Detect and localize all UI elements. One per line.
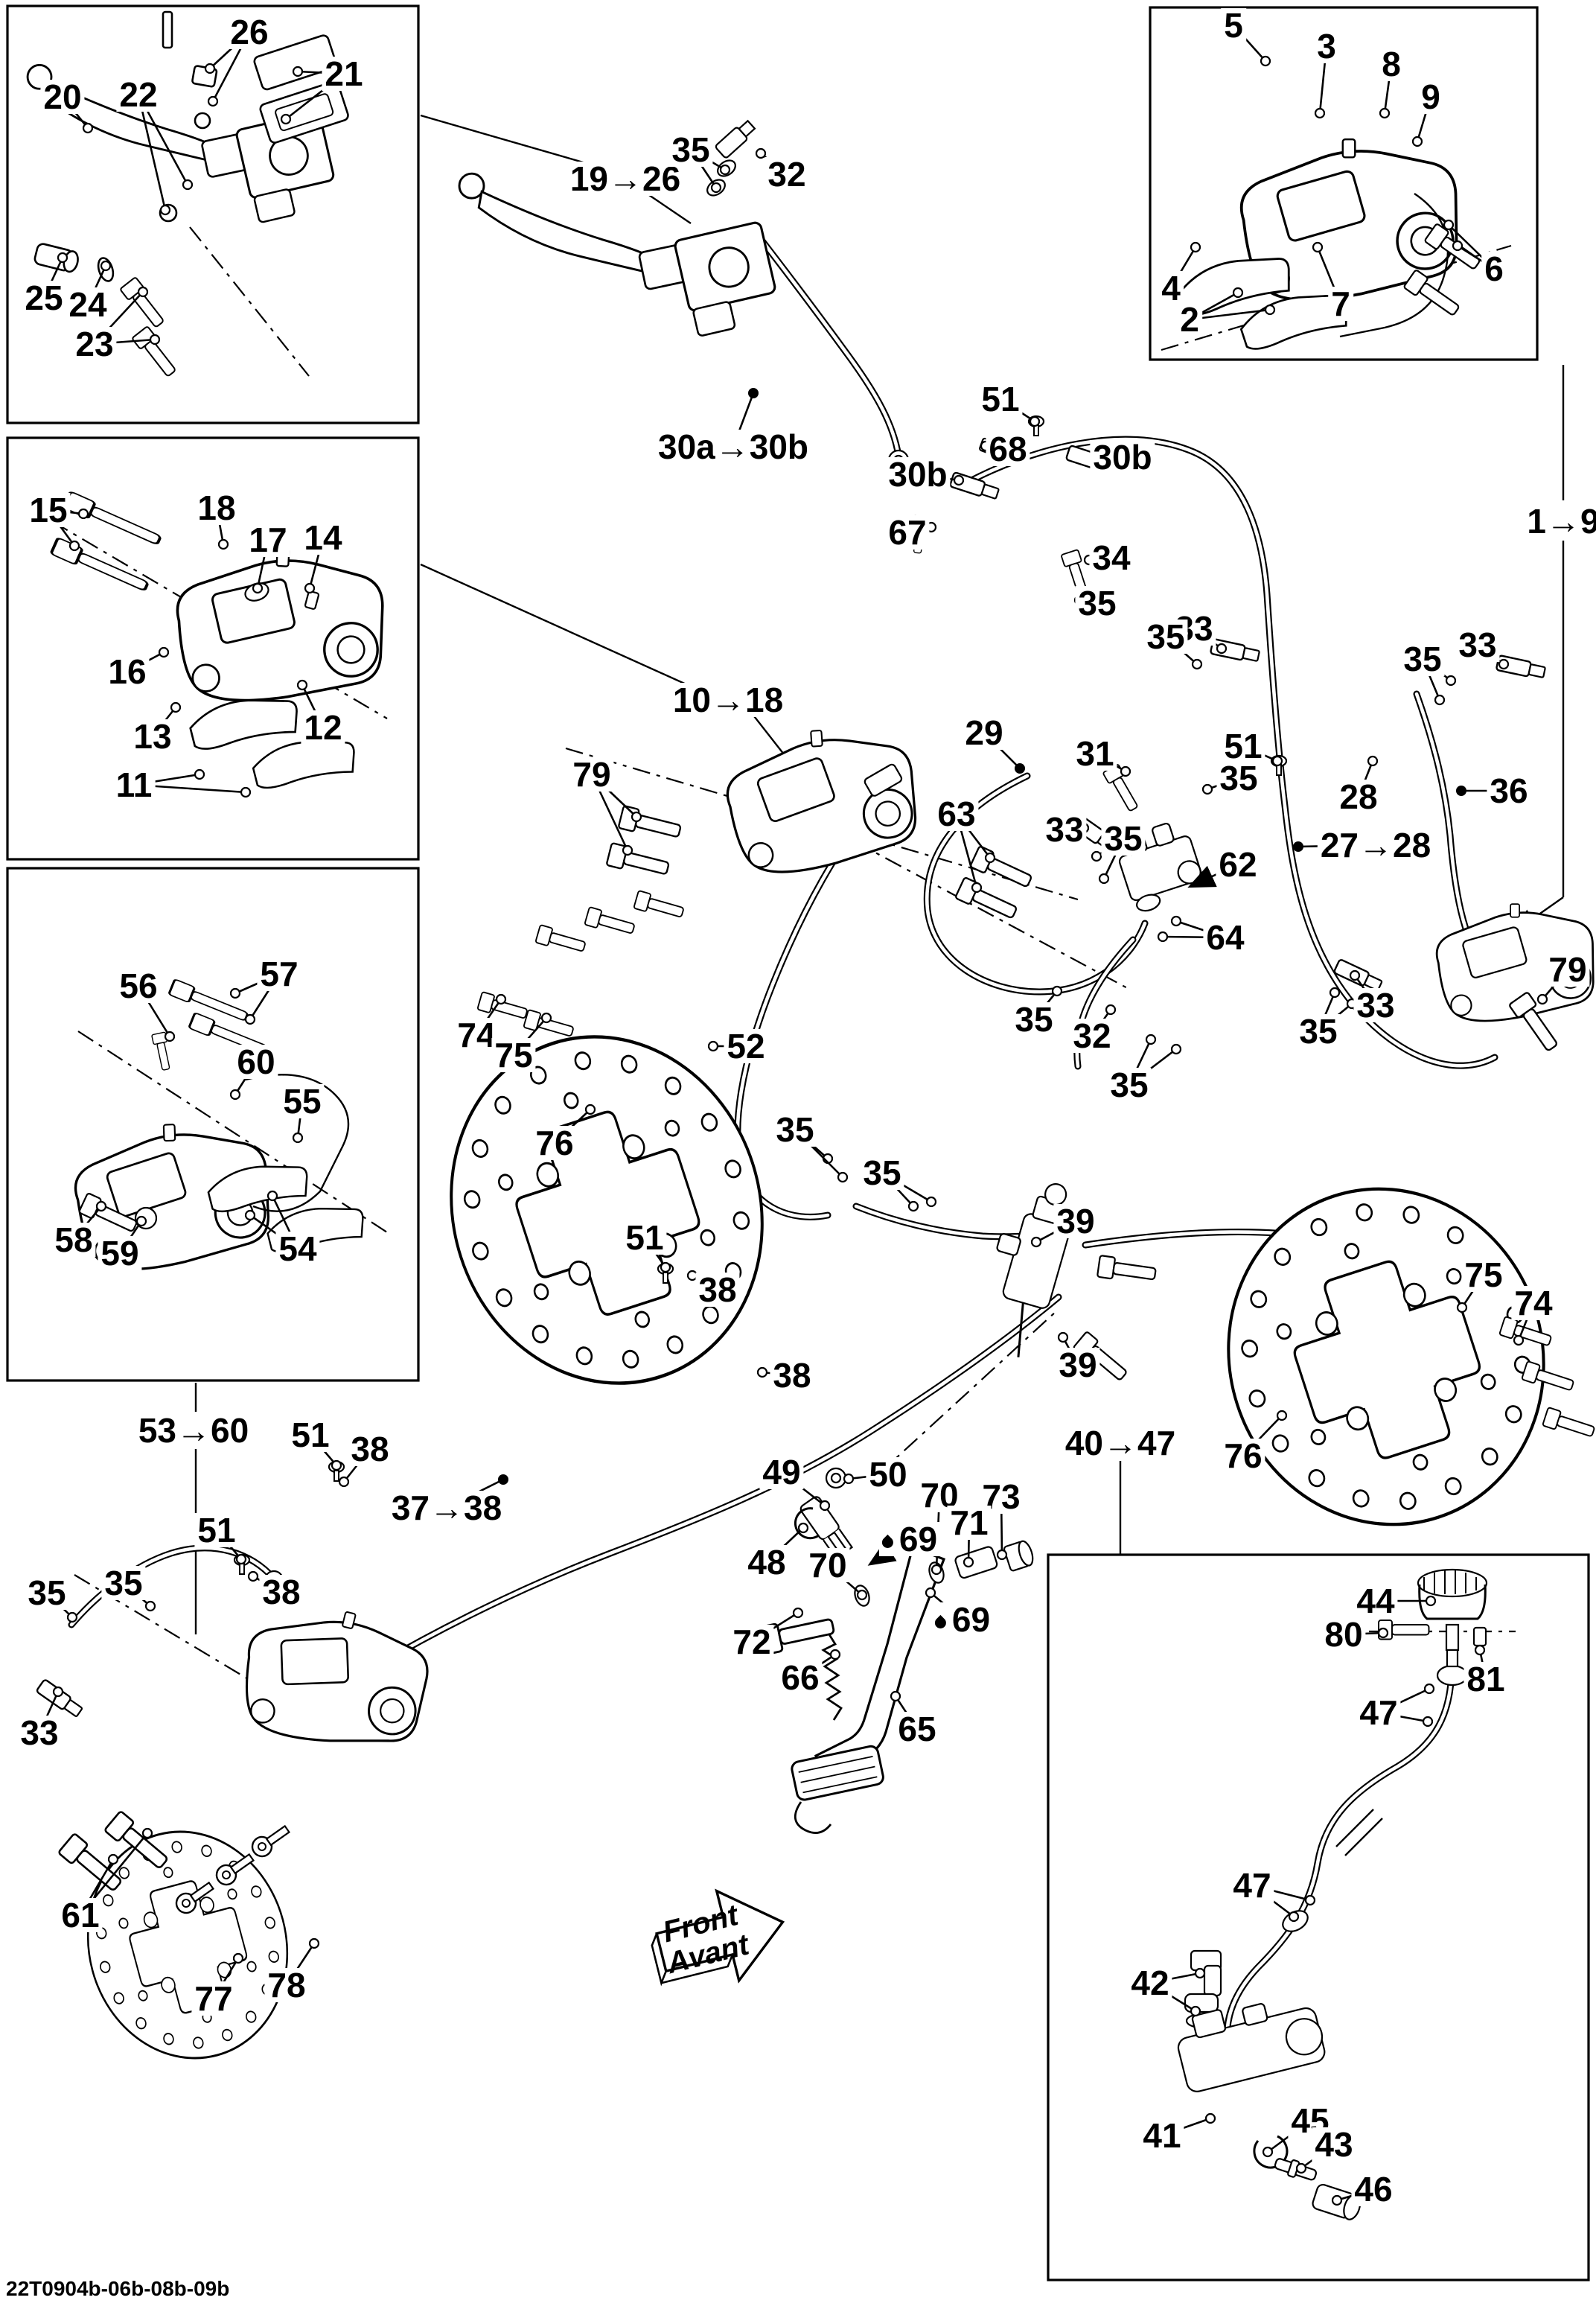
brake-pads — [187, 246, 1352, 1255]
callout-21: 21 — [322, 57, 366, 91]
callout-20: 20 — [40, 80, 84, 114]
callout-35: 35 — [1075, 586, 1119, 620]
callout-23: 23 — [72, 327, 116, 361]
callout-48: 48 — [744, 1545, 788, 1579]
callout-70: 70 — [805, 1548, 849, 1582]
callout-49: 49 — [759, 1455, 803, 1489]
callout-80: 80 — [1321, 1617, 1365, 1652]
callout-69: 69 — [879, 1522, 940, 1556]
callout-75: 75 — [1461, 1258, 1505, 1292]
callout-59: 59 — [98, 1236, 141, 1270]
callout-32: 32 — [765, 157, 808, 191]
box-caliper-54-60 — [7, 868, 418, 1380]
callout-2: 2 — [1177, 302, 1202, 337]
callout-15: 15 — [26, 493, 70, 527]
callout-1→9: 1→9 — [1524, 504, 1596, 538]
callout-25: 25 — [22, 281, 66, 315]
callout-39: 39 — [1056, 1348, 1099, 1382]
caliper-box2 — [173, 540, 390, 706]
callout-9: 9 — [1418, 80, 1443, 114]
pin-15b — [51, 538, 150, 595]
callout-57: 57 — [257, 957, 301, 991]
callout-40→47: 40→47 — [1062, 1426, 1178, 1460]
callout-55: 55 — [280, 1084, 324, 1118]
callout-60: 60 — [234, 1045, 278, 1079]
oil-drop-icon — [933, 1615, 948, 1631]
callout-32: 32 — [1070, 1019, 1114, 1053]
callout-79: 79 — [569, 757, 613, 792]
callout-58: 58 — [51, 1223, 95, 1257]
callout-35: 35 — [1012, 1002, 1056, 1036]
callout-35: 35 — [773, 1112, 817, 1147]
callout-50: 50 — [866, 1457, 910, 1491]
callout-22: 22 — [116, 77, 160, 112]
callout-7: 7 — [1328, 287, 1353, 321]
callout-64: 64 — [1203, 920, 1247, 955]
pin-15a — [63, 491, 162, 549]
callout-35: 35 — [1101, 821, 1145, 856]
callout-52: 52 — [724, 1029, 767, 1063]
callout-79: 79 — [1545, 952, 1589, 987]
callout-31: 31 — [1073, 736, 1117, 771]
brake-lever-19-26 — [459, 173, 782, 337]
brake-disc-76-right — [1185, 1147, 1587, 1565]
callout-36: 36 — [1487, 774, 1530, 808]
callout-13: 13 — [130, 719, 174, 754]
callout-75: 75 — [491, 1038, 535, 1072]
callout-35: 35 — [1216, 761, 1260, 795]
callout-35: 35 — [101, 1566, 145, 1600]
callout-51: 51 — [194, 1513, 238, 1547]
bolt-23a — [120, 277, 167, 331]
callout-38: 38 — [695, 1273, 739, 1307]
callout-29: 29 — [962, 716, 1006, 750]
callout-41: 41 — [1140, 2118, 1184, 2153]
callout-33: 33 — [1455, 628, 1499, 662]
spring-66 — [823, 1632, 841, 1720]
callout-35: 35 — [1296, 1014, 1340, 1048]
callout-66: 66 — [778, 1660, 822, 1695]
callout-42: 42 — [1128, 1966, 1172, 2000]
callout-46: 46 — [1351, 2172, 1395, 2206]
callout-24: 24 — [66, 287, 109, 322]
plug-81 — [1474, 1628, 1486, 1646]
callout-28: 28 — [1336, 780, 1380, 814]
callout-18: 18 — [194, 491, 238, 525]
callout-30b: 30b — [1090, 440, 1155, 474]
callout-27→28: 27→28 — [1318, 828, 1434, 862]
callout-69: 69 — [932, 1602, 993, 1637]
diagram-code: 22T0904b-06b-08b-09b — [6, 2277, 229, 2301]
callout-17: 17 — [246, 523, 290, 557]
callout-39: 39 — [1053, 1204, 1097, 1238]
callout-16: 16 — [105, 655, 149, 689]
callout-33: 33 — [1042, 812, 1086, 847]
callout-30a→30b: 30a→30b — [655, 430, 811, 464]
callout-65: 65 — [895, 1712, 939, 1746]
callout-34: 34 — [1089, 541, 1133, 575]
callout-51: 51 — [622, 1220, 666, 1255]
callout-51: 51 — [978, 382, 1022, 416]
callout-77: 77 — [191, 1981, 235, 2016]
callout-54: 54 — [275, 1232, 319, 1266]
callout-10→18: 10→18 — [670, 683, 786, 717]
callout-35: 35 — [668, 133, 712, 167]
callout-33: 33 — [17, 1716, 61, 1750]
callout-38: 38 — [259, 1575, 303, 1609]
callout-33: 33 — [1353, 988, 1397, 1022]
callout-71: 71 — [947, 1506, 991, 1540]
diagram-art — [0, 0, 1596, 2312]
callout-14: 14 — [301, 520, 345, 555]
callout-44: 44 — [1353, 1584, 1397, 1618]
callout-47: 47 — [1230, 1868, 1274, 1902]
callout-38: 38 — [348, 1432, 392, 1466]
callout-35: 35 — [1107, 1068, 1151, 1102]
bolt-23b — [132, 326, 179, 380]
callout-35: 35 — [25, 1576, 68, 1610]
callout-35: 35 — [1400, 642, 1444, 676]
callout-38: 38 — [770, 1358, 814, 1392]
callout-8: 8 — [1379, 47, 1404, 81]
callout-56: 56 — [116, 969, 160, 1003]
caliper-rear — [240, 1602, 432, 1751]
callout-81: 81 — [1463, 1662, 1507, 1696]
callout-35: 35 — [1143, 620, 1187, 654]
callout-63: 63 — [934, 797, 978, 831]
callout-37→38: 37→38 — [389, 1491, 505, 1525]
parts-diagram-page: Front Avant 22T0904b-06b-08b-09b 2022262… — [0, 0, 1596, 2312]
clamp-47a — [1437, 1666, 1467, 1685]
callout-61: 61 — [58, 1898, 102, 1932]
callout-3: 3 — [1314, 29, 1339, 63]
callout-12: 12 — [301, 710, 345, 745]
callout-26: 26 — [227, 15, 271, 49]
callout-6: 6 — [1481, 252, 1507, 286]
callout-62: 62 — [1216, 847, 1260, 882]
callout-72: 72 — [730, 1625, 773, 1659]
oil-drop-icon — [880, 1535, 896, 1550]
brake-disc-78-rear — [63, 1809, 313, 2081]
callout-43: 43 — [1312, 2127, 1356, 2162]
callout-11: 11 — [113, 768, 156, 802]
callout-76: 76 — [1221, 1439, 1265, 1473]
spacer-71 — [954, 1546, 998, 1579]
callout-78: 78 — [264, 1968, 308, 2002]
bolt-39a — [1097, 1255, 1157, 1284]
callout-35: 35 — [860, 1156, 904, 1190]
callout-19→26: 19→26 — [567, 162, 683, 196]
callout-76: 76 — [532, 1126, 576, 1160]
callout-47: 47 — [1356, 1695, 1400, 1730]
callout-68: 68 — [986, 432, 1030, 466]
caliper-front-left — [718, 713, 927, 883]
callout-5: 5 — [1221, 8, 1246, 42]
callout-30b: 30b — [885, 457, 950, 491]
callout-74: 74 — [1511, 1286, 1555, 1320]
callout-67: 67 — [885, 515, 929, 550]
callout-51: 51 — [288, 1418, 332, 1452]
callout-53→60: 53→60 — [135, 1413, 252, 1448]
